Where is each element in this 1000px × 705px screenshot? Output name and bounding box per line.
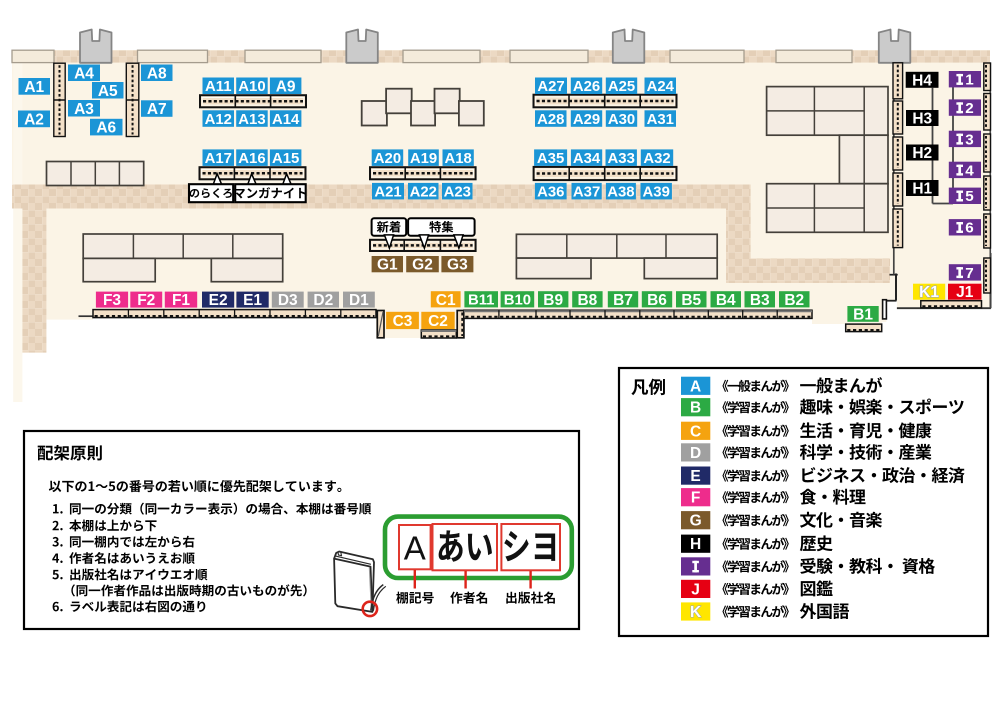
svg-text:G1: G1	[377, 257, 398, 274]
svg-text:G2: G2	[412, 257, 433, 274]
svg-text:A37: A37	[573, 184, 600, 200]
svg-text:A19: A19	[410, 151, 437, 167]
svg-text:D1: D1	[349, 292, 369, 309]
svg-text:B11: B11	[468, 293, 495, 309]
svg-text:B2: B2	[784, 292, 804, 309]
svg-text:H1: H1	[912, 181, 932, 198]
svg-text:B10: B10	[504, 293, 531, 309]
svg-text:A23: A23	[444, 184, 471, 200]
svg-text:A33: A33	[608, 151, 635, 167]
svg-text:5: 5	[965, 188, 974, 205]
svg-text:A9: A9	[276, 78, 296, 95]
svg-text:C: C	[690, 423, 701, 440]
svg-text:B1: B1	[853, 306, 873, 323]
svg-text:A27: A27	[537, 79, 564, 95]
svg-text:A15: A15	[272, 151, 299, 167]
svg-text:B7: B7	[613, 292, 633, 309]
svg-text:A26: A26	[573, 79, 600, 95]
svg-text:4: 4	[965, 162, 974, 179]
svg-text:H3: H3	[912, 111, 932, 128]
svg-text:A14: A14	[272, 112, 300, 128]
svg-text:G: G	[690, 513, 702, 530]
svg-text:A39: A39	[643, 184, 670, 200]
svg-text:A35: A35	[537, 151, 564, 167]
svg-text:A: A	[404, 530, 426, 567]
svg-text:A29: A29	[573, 112, 600, 128]
svg-text:A3: A3	[74, 101, 94, 118]
svg-text:K: K	[690, 604, 702, 621]
svg-text:A7: A7	[147, 101, 167, 118]
svg-text:A25: A25	[608, 79, 635, 95]
svg-text:A6: A6	[96, 120, 116, 137]
svg-text:A21: A21	[374, 184, 401, 200]
svg-text:A11: A11	[205, 79, 232, 95]
svg-text:F2: F2	[137, 292, 155, 309]
svg-text:A28: A28	[537, 112, 564, 128]
svg-text:A16: A16	[238, 151, 265, 167]
svg-text:A5: A5	[98, 83, 118, 100]
svg-text:A22: A22	[410, 184, 437, 200]
svg-text:6: 6	[965, 220, 973, 237]
svg-text:A4: A4	[74, 65, 94, 82]
svg-text:J1: J1	[956, 284, 974, 301]
svg-text:C2: C2	[428, 313, 448, 330]
svg-text:E2: E2	[209, 292, 228, 309]
svg-text:A10: A10	[238, 79, 265, 95]
svg-text:B5: B5	[681, 292, 701, 309]
svg-text:A12: A12	[205, 112, 232, 128]
svg-text:A13: A13	[238, 112, 265, 128]
svg-text:A20: A20	[374, 151, 401, 167]
svg-text:F1: F1	[172, 292, 190, 309]
svg-text:2: 2	[965, 100, 973, 117]
svg-text:A8: A8	[147, 65, 167, 82]
svg-text:B4: B4	[716, 292, 736, 309]
svg-text:D2: D2	[313, 292, 333, 309]
svg-text:K1: K1	[919, 284, 939, 301]
svg-text:A24: A24	[647, 79, 675, 95]
svg-text:A: A	[690, 378, 701, 395]
svg-text:A30: A30	[608, 112, 635, 128]
svg-text:B9: B9	[543, 292, 563, 309]
svg-text:A34: A34	[573, 151, 601, 167]
svg-text:A36: A36	[537, 184, 564, 200]
svg-text:D: D	[690, 445, 701, 462]
svg-text:A32: A32	[643, 151, 670, 167]
svg-text:A38: A38	[607, 184, 634, 200]
svg-text:F3: F3	[103, 292, 121, 309]
svg-text:3: 3	[965, 131, 973, 148]
svg-text:E1: E1	[243, 292, 262, 309]
svg-text:B8: B8	[577, 292, 597, 309]
svg-text:A2: A2	[24, 111, 44, 128]
svg-text:1: 1	[965, 72, 974, 89]
svg-text:H4: H4	[912, 72, 932, 89]
svg-text:A17: A17	[205, 151, 232, 167]
svg-text:F: F	[691, 490, 700, 507]
svg-text:C1: C1	[436, 292, 456, 309]
svg-text:G3: G3	[447, 257, 468, 274]
svg-text:H: H	[690, 536, 701, 553]
svg-text:J: J	[691, 581, 700, 598]
svg-text:7: 7	[965, 265, 973, 282]
svg-text:H2: H2	[912, 145, 932, 162]
svg-text:A31: A31	[647, 112, 674, 128]
svg-text:A18: A18	[444, 151, 471, 167]
svg-text:C3: C3	[393, 313, 413, 330]
svg-text:B: B	[690, 400, 701, 417]
svg-text:E: E	[690, 468, 700, 485]
svg-text:D3: D3	[278, 292, 298, 309]
svg-text:B3: B3	[750, 292, 770, 309]
svg-text:A1: A1	[24, 79, 44, 96]
svg-text:B6: B6	[647, 292, 667, 309]
